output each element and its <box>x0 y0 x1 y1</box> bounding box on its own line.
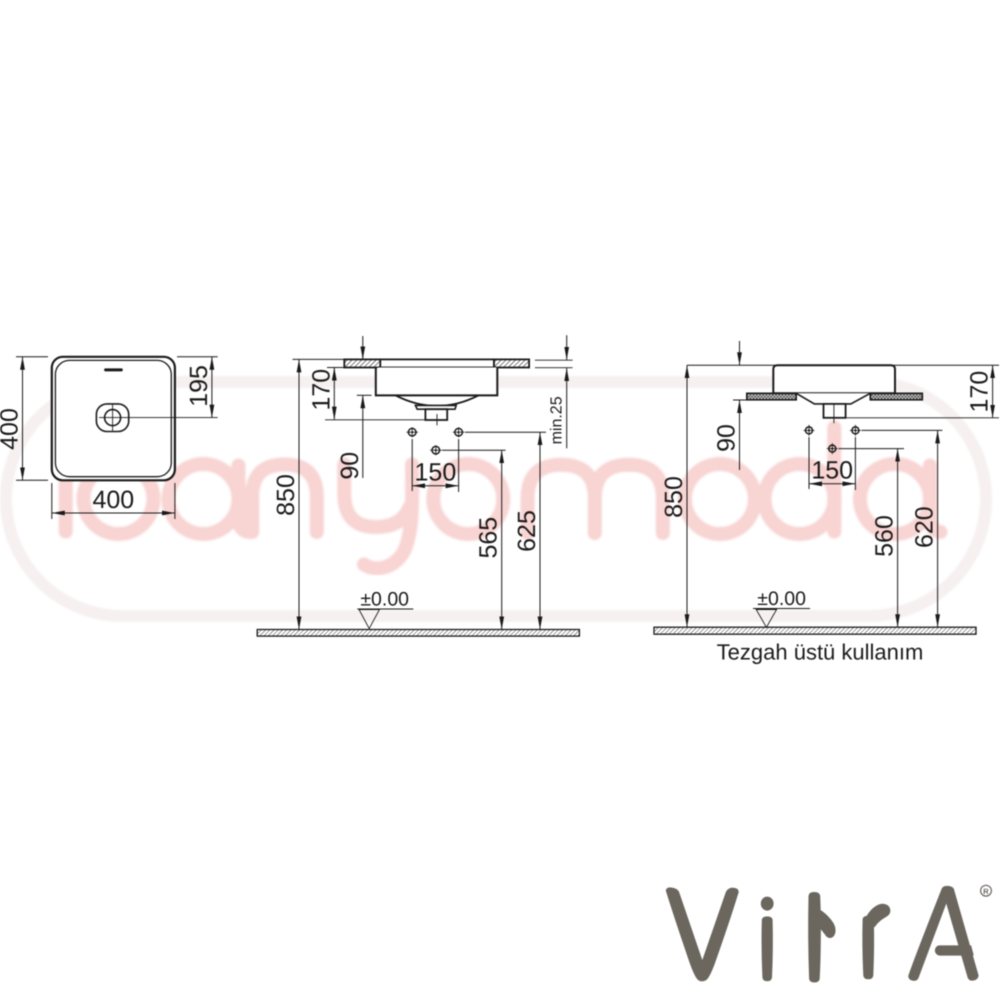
svg-text:850: 850 <box>660 476 688 518</box>
svg-text:195: 195 <box>185 365 213 407</box>
svg-text:Tezgah üstü kullanım: Tezgah üstü kullanım <box>717 640 924 665</box>
svg-text:400: 400 <box>92 486 134 514</box>
svg-text:150: 150 <box>415 459 457 487</box>
svg-text:620: 620 <box>911 506 939 548</box>
svg-text:400: 400 <box>0 408 24 450</box>
svg-text:560: 560 <box>871 515 899 557</box>
svg-text:90: 90 <box>336 452 364 480</box>
svg-text:R: R <box>983 887 989 896</box>
svg-text:850: 850 <box>272 474 300 516</box>
svg-text:170: 170 <box>307 369 335 411</box>
svg-text:±0.00: ±0.00 <box>757 588 806 610</box>
svg-text:565: 565 <box>475 517 503 559</box>
svg-text:625: 625 <box>513 510 541 552</box>
svg-text:±0.00: ±0.00 <box>360 589 409 611</box>
svg-text:90: 90 <box>713 424 741 452</box>
svg-text:min.25: min.25 <box>549 396 566 444</box>
svg-text:170: 170 <box>966 371 994 413</box>
svg-text:150: 150 <box>811 456 853 484</box>
